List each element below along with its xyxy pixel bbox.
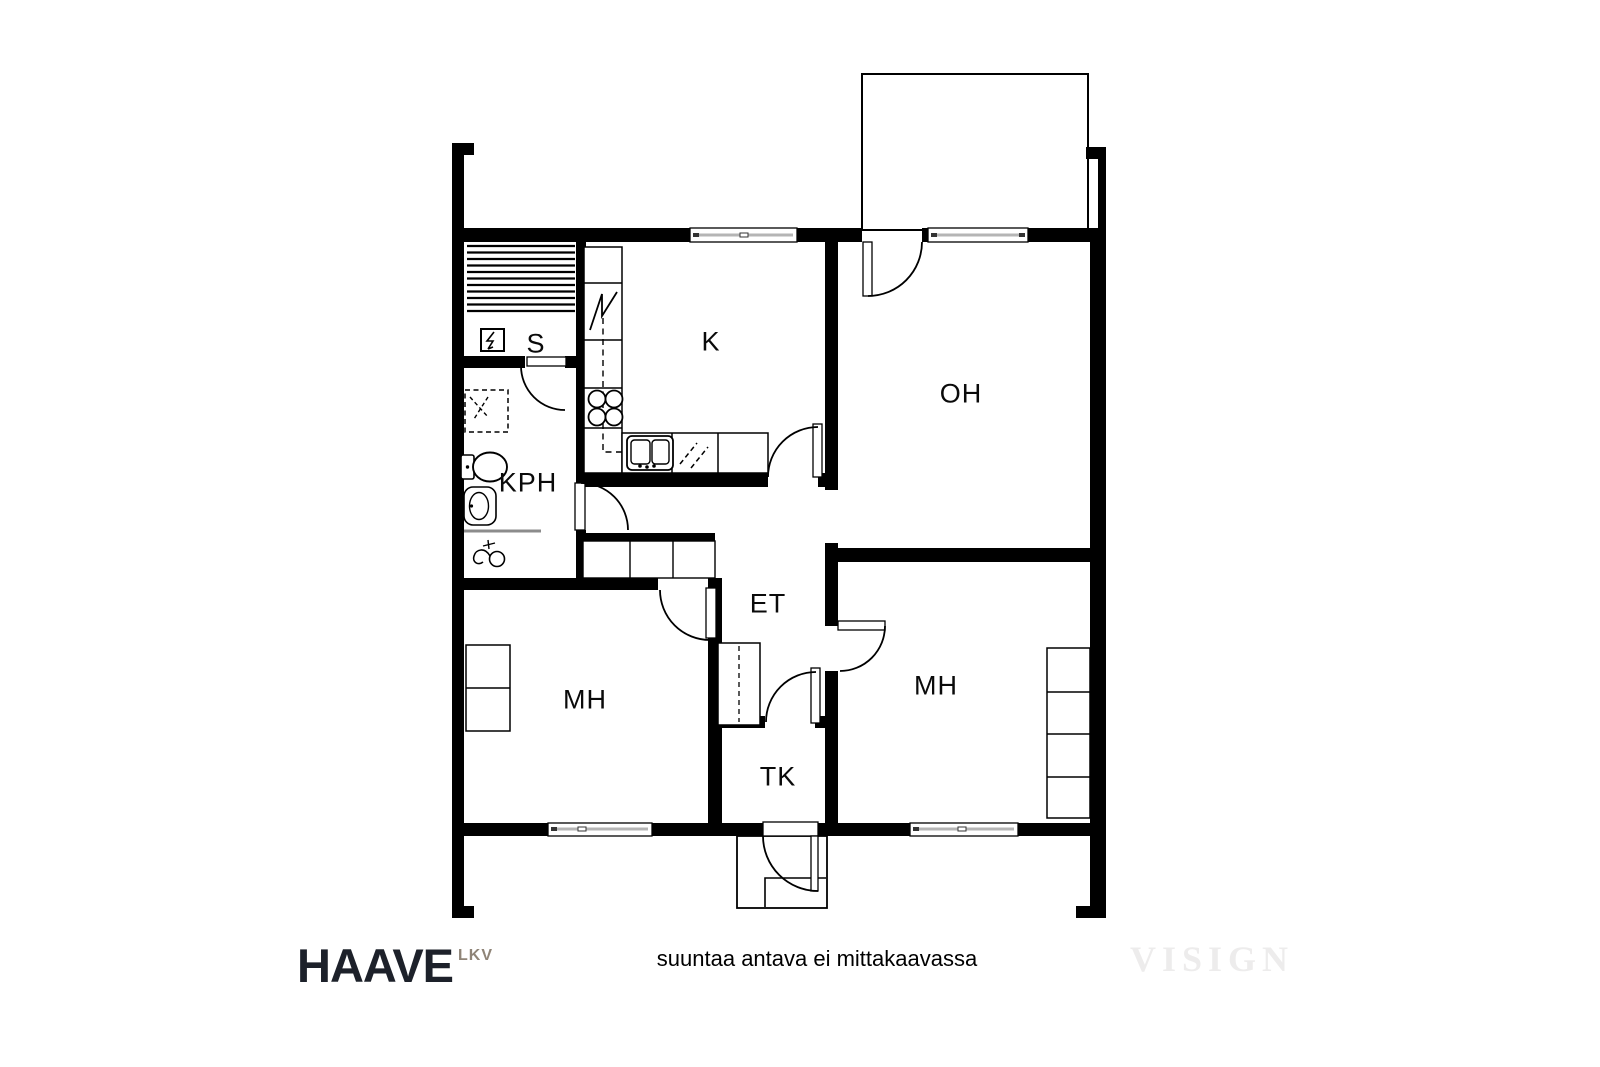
wall-bottom-1 xyxy=(452,823,548,836)
wall-kitchen-living xyxy=(825,242,838,490)
disclaimer-text: suuntaa antava ei mittakaavassa xyxy=(657,946,977,972)
washing-machine-icon xyxy=(465,390,508,432)
bedroom-left-closet xyxy=(466,645,510,731)
door-swing-icon xyxy=(766,672,816,722)
wall-living-bedroom-right xyxy=(825,548,1090,562)
wall-top-4 xyxy=(1028,228,1106,242)
bedroom-right-closets xyxy=(1047,648,1090,818)
sauna-heater-icon xyxy=(481,329,504,351)
wall-top-2 xyxy=(797,228,862,242)
room-label-bathroom: KPH xyxy=(499,468,558,499)
window-bedroom-right xyxy=(910,823,1018,836)
door-swing-icon xyxy=(660,590,710,640)
wall-right xyxy=(1090,228,1106,918)
room-label-bedroom-left: MH xyxy=(563,685,607,716)
wall-hall-bedroom-right-lower xyxy=(825,671,838,823)
floor-plan-page: S K OH KPH ET MH MH TK HAAVE LKV suuntaa… xyxy=(0,0,1600,1067)
room-label-living-room: OH xyxy=(940,379,983,410)
wall-left xyxy=(452,143,464,918)
door-swing-icon xyxy=(768,427,818,477)
wall-right-bottom-cap xyxy=(1076,906,1090,918)
room-label-walk-in-closet: TK xyxy=(760,762,797,793)
window-kitchen xyxy=(690,228,797,242)
wall-bottom-4 xyxy=(1018,823,1106,836)
wall-sauna-bathroom-right xyxy=(565,356,586,368)
door-walk-in-closet xyxy=(766,668,820,723)
door-bathroom xyxy=(575,483,628,530)
wall-left-top-cap xyxy=(464,143,474,155)
door-swing-icon xyxy=(581,483,628,530)
door-kitchen xyxy=(768,424,822,477)
door-swing-icon xyxy=(868,242,922,296)
kitchen-counter xyxy=(584,247,768,473)
wall-hall-bedroom-left xyxy=(462,578,658,590)
door-bedroom-left xyxy=(660,588,716,640)
wall-left-bottom-cap xyxy=(464,906,474,918)
wall-top-1 xyxy=(452,228,690,242)
brand-logo-suffix: LKV xyxy=(458,947,493,965)
balcony xyxy=(862,74,1088,230)
wall-right-top-cap xyxy=(1086,147,1106,159)
wall-kitchen-bottom xyxy=(576,473,768,487)
room-label-sauna: S xyxy=(526,329,545,360)
sauna-bench-icon xyxy=(467,246,575,311)
window-living-room xyxy=(928,228,1028,242)
wall-sauna-bathroom-left xyxy=(462,356,525,368)
brand-logo: HAAVE xyxy=(297,938,453,993)
room-label-kitchen: K xyxy=(701,327,720,358)
entry-closet xyxy=(718,643,760,725)
interior-walls xyxy=(462,242,1090,823)
shower-mixer-icon xyxy=(474,540,505,567)
wall-bottom-2 xyxy=(652,823,763,836)
room-label-entry-hall: ET xyxy=(750,589,787,620)
door-bedroom-right xyxy=(838,621,885,671)
door-swing-icon xyxy=(521,366,565,410)
watermark-text: VISIGN xyxy=(1130,938,1294,980)
door-sauna-bathroom xyxy=(521,357,566,410)
hall-closets xyxy=(583,533,715,578)
room-label-bedroom-right: MH xyxy=(914,671,958,702)
kitchen-sink-icon xyxy=(627,436,673,470)
window-bedroom-left xyxy=(548,823,652,836)
door-balcony xyxy=(863,242,922,296)
wall-right-upper xyxy=(1098,147,1106,232)
door-swing-icon xyxy=(840,626,885,671)
wall-bottom-3 xyxy=(818,823,910,836)
floor-plan xyxy=(0,0,1600,1067)
wall-top-3 xyxy=(922,228,928,242)
